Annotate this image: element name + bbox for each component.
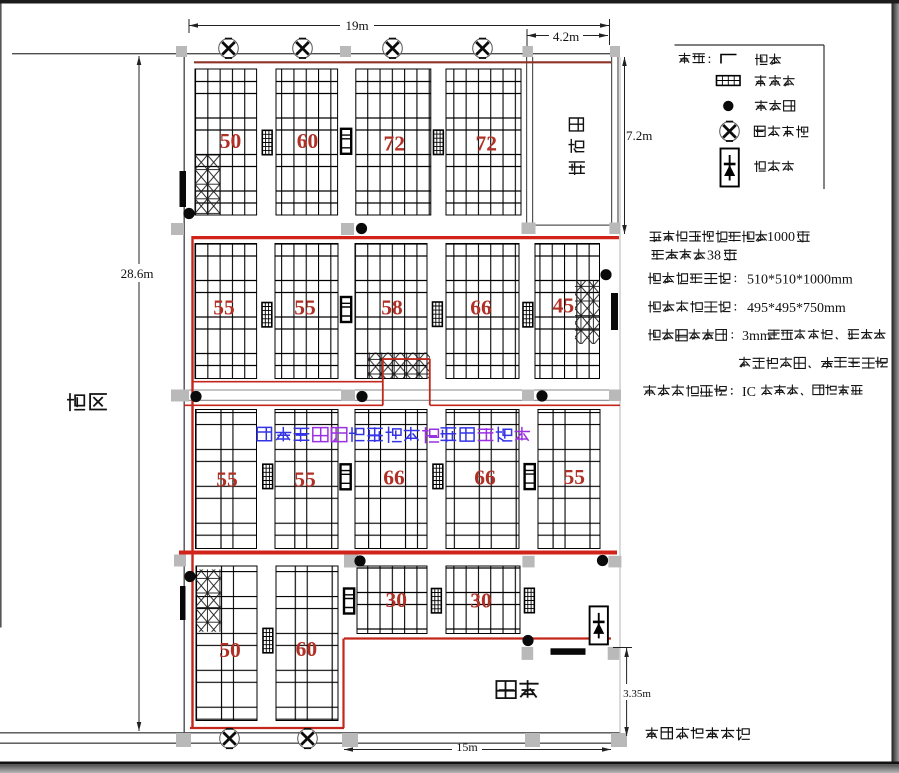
svg-text:15m: 15m	[456, 740, 478, 754]
svg-text:510*510*1000mm: 510*510*1000mm	[747, 273, 853, 288]
svg-text:72: 72	[383, 131, 405, 155]
svg-text:55: 55	[564, 465, 586, 489]
svg-text:30: 30	[470, 589, 492, 613]
svg-text:50: 50	[220, 129, 242, 153]
svg-text:3.35m: 3.35m	[623, 688, 651, 700]
svg-text:66: 66	[474, 466, 496, 490]
svg-text:55: 55	[294, 296, 316, 320]
svg-text:30: 30	[386, 588, 408, 612]
svg-text:60: 60	[297, 129, 319, 153]
svg-text:495*495*750mm: 495*495*750mm	[747, 301, 846, 316]
svg-text:50: 50	[219, 638, 241, 662]
svg-text:19m: 19m	[345, 18, 368, 33]
svg-text:72: 72	[476, 131, 498, 155]
svg-text:55: 55	[213, 296, 235, 320]
svg-text:28.6m: 28.6m	[121, 266, 154, 281]
svg-text::: :	[708, 52, 712, 67]
svg-text:3mm: 3mm	[742, 329, 771, 344]
svg-text:66: 66	[470, 296, 492, 320]
svg-text:4.2m: 4.2m	[553, 29, 579, 44]
svg-text:IC: IC	[742, 385, 756, 400]
svg-text:38: 38	[707, 249, 721, 264]
svg-text:45: 45	[553, 293, 575, 317]
svg-text:7.2m: 7.2m	[626, 128, 652, 143]
svg-text:55: 55	[294, 468, 316, 492]
svg-text:66: 66	[383, 466, 405, 490]
svg-text:60: 60	[296, 637, 318, 661]
svg-text:55: 55	[216, 468, 238, 492]
svg-text:58: 58	[381, 296, 403, 320]
svg-text:1000: 1000	[767, 230, 795, 245]
